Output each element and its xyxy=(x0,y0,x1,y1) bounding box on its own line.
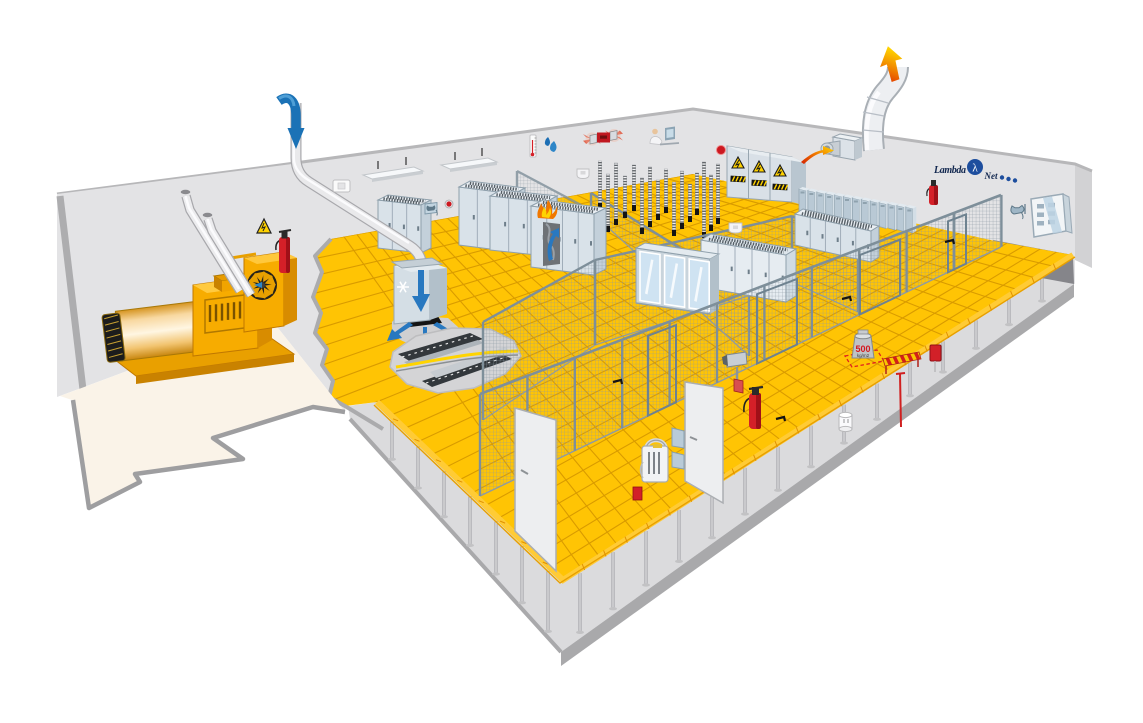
svg-text:Lambda: Lambda xyxy=(933,165,966,176)
svg-text:λ: λ xyxy=(972,163,978,175)
svg-text:Net: Net xyxy=(984,171,998,181)
svg-text:kg/m2: kg/m2 xyxy=(857,353,870,358)
